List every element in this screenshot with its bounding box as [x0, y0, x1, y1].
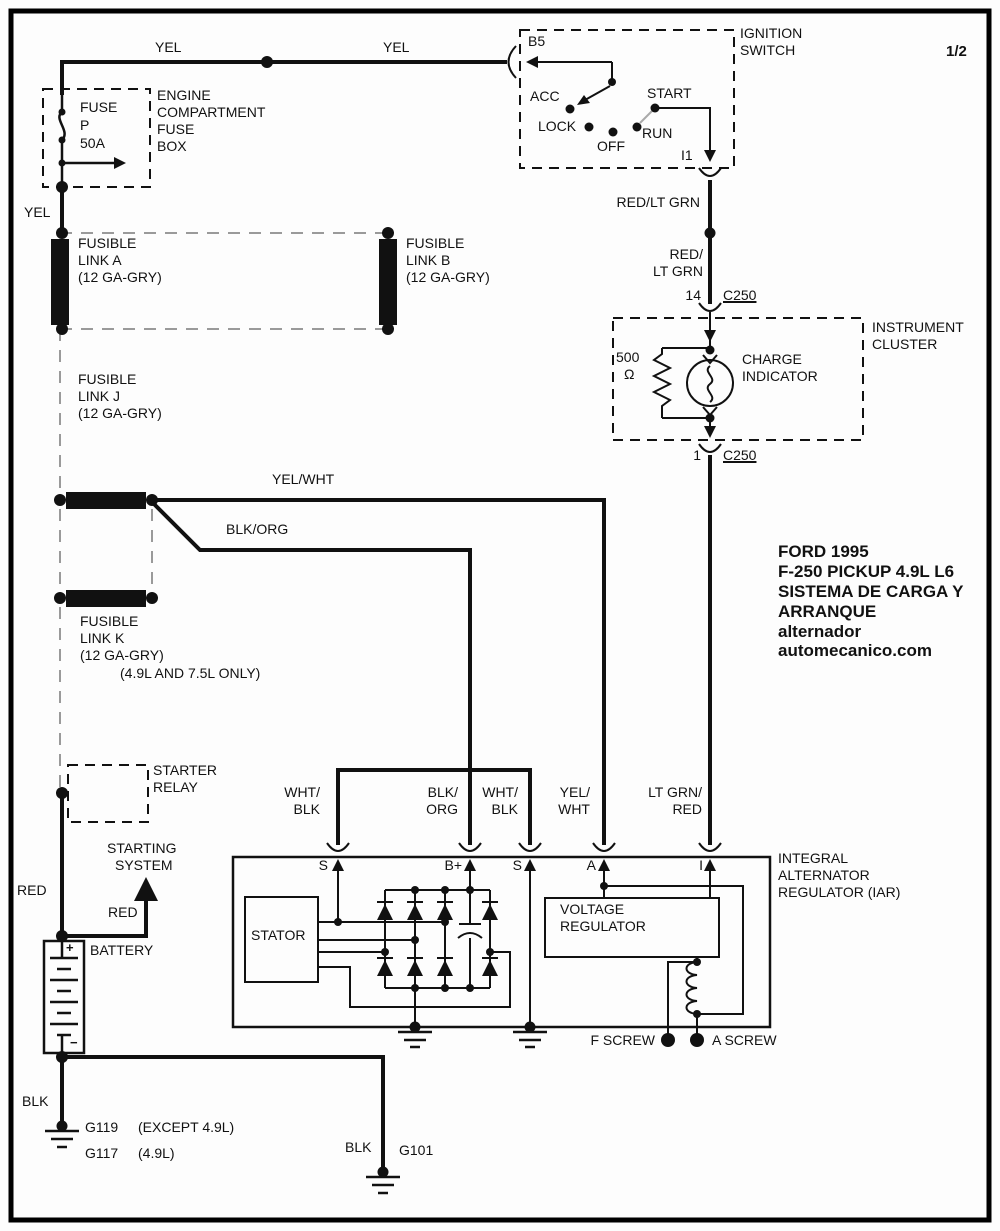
wire-label-blk-left: BLK — [22, 1094, 48, 1110]
starting-system-arrowhead — [134, 877, 158, 901]
link-b-1: FUSIBLE — [406, 236, 464, 252]
voltage-regulator-2: REGULATOR — [560, 919, 646, 935]
wire-label-yel-wht-a: YEL/ — [560, 785, 590, 801]
ignition-title-2: SWITCH — [740, 43, 795, 59]
c250-bottom-connector: C250 — [723, 448, 756, 464]
fusible-link-bar-upper — [66, 492, 146, 509]
c250-top-arc — [699, 303, 721, 311]
fuse-box-name-1: ENGINE — [157, 88, 211, 104]
terminal-i: I — [699, 858, 703, 874]
c250-top-connector: C250 — [723, 288, 756, 304]
battery-plus-sign: + — [66, 941, 74, 956]
ignition-title-1: IGNITION — [740, 26, 802, 42]
wire-label-red-ltgrn: RED/LT GRN — [617, 195, 701, 211]
cluster-title-1: INSTRUMENT — [872, 320, 964, 336]
wire-label-yel-2: YEL — [383, 40, 409, 56]
terminal-arrowheads — [332, 859, 716, 871]
link-a-1: FUSIBLE — [78, 236, 136, 252]
link-b-3: (12 GA-GRY) — [406, 270, 490, 286]
cluster-title-2: CLUSTER — [872, 337, 937, 353]
fuse-rating: 50A — [80, 136, 105, 152]
resistor-unit: Ω — [624, 367, 634, 383]
link-k-note: (4.9L AND 7.5L ONLY) — [120, 666, 260, 682]
starter-relay-1: STARTER — [153, 763, 217, 779]
ground-g101 — [366, 1177, 400, 1193]
battery-minus-sign: − — [70, 1036, 78, 1051]
cluster-exit-arrowhead — [704, 426, 716, 438]
wire-label-red-ltgrn2a: RED/ — [670, 247, 703, 263]
link-k-1: FUSIBLE — [80, 614, 138, 630]
terminal-bplus: B+ — [444, 858, 462, 874]
title-block-line6: automecanico.com — [778, 641, 932, 661]
link-k-2: LINK K — [80, 631, 124, 647]
ground-bridge — [398, 1032, 432, 1047]
link-j-3: (12 GA-GRY) — [78, 406, 162, 422]
position-lock: LOCK — [538, 119, 576, 135]
iar-title-1: INTEGRAL — [778, 851, 848, 867]
fuse-label: FUSE — [80, 100, 117, 116]
link-j-2: LINK J — [78, 389, 120, 405]
fuse-box-name-3: FUSE — [157, 122, 194, 138]
ground-s2 — [513, 1032, 547, 1047]
link-b-2: LINK B — [406, 253, 450, 269]
a-screw-label: A SCREW — [712, 1033, 777, 1049]
position-off: OFF — [597, 139, 625, 155]
ground-g117-note: (4.9L) — [138, 1146, 175, 1162]
wire-label-red-2: RED — [108, 905, 138, 921]
terminal-s1: S — [319, 858, 328, 874]
wire-label-yel-wht: YEL/WHT — [272, 472, 334, 488]
instrument-cluster-outline — [613, 318, 863, 440]
title-block-line2: F-250 PICKUP 4.9L L6 — [778, 562, 954, 582]
c250-top-pin: 14 — [685, 288, 701, 304]
f-screw-terminal — [661, 1033, 675, 1047]
title-block-line5: alternador — [778, 622, 861, 642]
link-j-1: FUSIBLE — [78, 372, 136, 388]
stator-label: STATOR — [251, 928, 305, 944]
field-coil — [687, 962, 698, 1014]
resistor-value: 500 — [616, 350, 639, 366]
link-a-2: LINK A — [78, 253, 122, 269]
battery-symbol — [44, 941, 84, 1053]
fuse-box-name-4: BOX — [157, 139, 187, 155]
wire-label-blk-right: BLK — [345, 1140, 371, 1156]
wire-label-wht-blk-1b: BLK — [294, 802, 320, 818]
starting-system-2: SYSTEM — [115, 858, 173, 874]
ground-g119-note: (EXCEPT 4.9L) — [138, 1120, 234, 1136]
title-block-line1: FORD 1995 — [778, 542, 869, 562]
i1-arrowhead — [704, 150, 716, 162]
wire-label-yel-1: YEL — [155, 40, 181, 56]
terminal-s2: S — [513, 858, 522, 874]
bulb-filament — [708, 366, 713, 402]
iar-internals — [233, 843, 770, 1040]
iar-title-2: ALTERNATOR — [778, 868, 870, 884]
wire-label-red-ltgrn2b: LT GRN — [653, 264, 703, 280]
yel-wire — [62, 62, 507, 95]
a-screw-terminal — [690, 1033, 704, 1047]
wire-label-blk-org-a: BLK/ — [428, 785, 458, 801]
link-k-3: (12 GA-GRY) — [80, 648, 164, 664]
ground-g101: G101 — [399, 1143, 433, 1159]
cluster-entry-arrowhead — [704, 330, 716, 342]
wiring-diagram: 1/2 YEL YEL YEL FUSE P 50A ENGINE COMPAR… — [0, 0, 1000, 1231]
wire-label-red-1: RED — [17, 883, 47, 899]
page-indicator: 1/2 — [946, 44, 967, 61]
dashed-guides — [60, 233, 388, 791]
c250-bottom-arc — [699, 444, 721, 452]
wire-label-wht-blk-2a: WHT/ — [482, 785, 518, 801]
wire-label-yel-3: YEL — [24, 205, 50, 221]
junction-dots — [54, 56, 716, 1178]
link-a-3: (12 GA-GRY) — [78, 270, 162, 286]
wire-label-wht-blk-1a: WHT/ — [284, 785, 320, 801]
wire-label-blk-org: BLK/ORG — [226, 522, 288, 538]
ground-g119: G119 — [85, 1120, 118, 1136]
wire-label-ltgrn-red-a: LT GRN/ — [648, 785, 702, 801]
starting-system-1: STARTING — [107, 841, 177, 857]
position-run: RUN — [642, 126, 672, 142]
wire-label-yel-wht-b: WHT — [558, 802, 590, 818]
fusible-link-a-bar — [51, 239, 69, 325]
resistor-500ohm — [654, 348, 670, 418]
b5-connector-arc — [509, 46, 517, 78]
charge-indicator-1: CHARGE — [742, 352, 802, 368]
iar-outline — [233, 857, 770, 1027]
title-block-line4: ARRANQUE — [778, 602, 876, 622]
starter-relay-2: RELAY — [153, 780, 198, 796]
starter-relay-outline — [68, 765, 148, 822]
ground-g119-g117 — [45, 1131, 79, 1147]
iar-title-3: REGULATOR (IAR) — [778, 885, 900, 901]
acc-arrowhead — [577, 95, 590, 105]
battery-label: BATTERY — [90, 943, 153, 959]
ground-g117: G117 — [85, 1146, 118, 1162]
terminal-i1: I1 — [681, 148, 693, 164]
c250-bottom-pin: 1 — [693, 448, 701, 464]
position-acc: ACC — [530, 89, 560, 105]
title-block-line3: SISTEMA DE CARGA Y — [778, 582, 963, 602]
terminal-a: A — [587, 858, 596, 874]
wire-label-ltgrn-red-b: RED — [672, 802, 702, 818]
position-start: START — [647, 86, 692, 102]
i1-connector-arc — [699, 168, 721, 176]
charge-indicator-2: INDICATOR — [742, 369, 818, 385]
wire-label-wht-blk-2b: BLK — [492, 802, 518, 818]
instrument-cluster-symbol — [654, 303, 733, 452]
terminal-b5: B5 — [528, 34, 545, 50]
wire-label-blk-org-b: ORG — [426, 802, 458, 818]
fuse-id: P — [80, 118, 89, 134]
fusible-link-b-bar — [379, 239, 397, 325]
fuse-box-name-2: COMPARTMENT — [157, 105, 265, 121]
fusible-link-k-bar — [66, 590, 146, 607]
fuse-arrow — [114, 157, 126, 169]
voltage-regulator-1: VOLTAGE — [560, 902, 624, 918]
f-screw-label: F SCREW — [590, 1033, 655, 1049]
b5-arrowhead — [526, 56, 538, 68]
